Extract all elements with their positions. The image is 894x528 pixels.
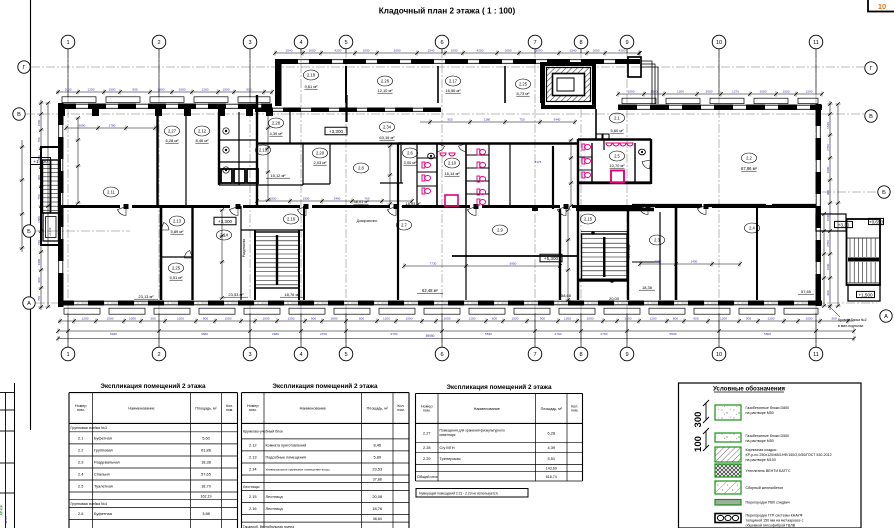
svg-text:58,68: 58,68: [561, 293, 572, 298]
svg-text:Экспликация помещений 2 этажа: Экспликация помещений 2 этажа: [446, 383, 552, 391]
svg-text:12,10 м²: 12,10 м²: [377, 88, 393, 93]
svg-text:2.2: 2.2: [746, 156, 752, 161]
svg-text:10,70 м²: 10,70 м²: [609, 163, 625, 168]
svg-text:5950: 5950: [510, 262, 517, 266]
svg-text:2.15: 2.15: [249, 494, 257, 499]
svg-text:1520: 1520: [270, 197, 277, 201]
svg-text:2.11: 2.11: [107, 190, 115, 195]
svg-text:Лестница: Лестница: [266, 506, 284, 511]
svg-text:Групповая ячейка №3: Групповая ячейка №3: [71, 426, 108, 430]
svg-text:2.13: 2.13: [249, 454, 257, 459]
svg-text:В: В: [869, 114, 873, 120]
svg-text:2.18: 2.18: [307, 73, 316, 78]
svg-text:1500: 1500: [303, 197, 310, 201]
svg-text:900: 900: [746, 317, 751, 321]
svg-text:62,48 м²: 62,48 м²: [422, 288, 439, 293]
svg-text:2.4: 2.4: [78, 472, 84, 477]
svg-text:Кладочный план 2 этажа ( 1 : 1: Кладочный план 2 этажа ( 1 : 100): [379, 7, 516, 16]
svg-text:Лестница: Лестница: [266, 494, 284, 499]
svg-text:+3,300: +3,300: [218, 219, 233, 224]
svg-text:7730: 7730: [430, 262, 437, 266]
svg-text:5,89 м²: 5,89 м²: [171, 229, 185, 234]
svg-text:Раздевальная: Раздевальная: [94, 460, 120, 465]
svg-text:2.5: 2.5: [614, 154, 620, 159]
svg-text:5800: 5800: [764, 332, 771, 336]
svg-text:2.28: 2.28: [272, 121, 281, 126]
svg-text:1400: 1400: [691, 260, 698, 264]
svg-text:Кол.: Кол.: [226, 404, 233, 408]
svg-text:пом.: пом.: [226, 408, 233, 412]
svg-text:6,28 м²: 6,28 м²: [166, 138, 180, 143]
svg-text:на растворе М50: на растворе М50: [746, 439, 774, 443]
svg-text:5480: 5480: [110, 332, 117, 336]
svg-text:2: 2: [157, 352, 160, 358]
svg-text:38,84: 38,84: [373, 517, 382, 521]
svg-text:1000: 1000: [129, 317, 136, 321]
svg-text:1540: 1540: [826, 214, 830, 221]
svg-text:143,69: 143,69: [546, 467, 557, 471]
svg-text:2.14: 2.14: [220, 233, 229, 238]
svg-text:4: 4: [299, 40, 302, 46]
svg-text:2.20: 2.20: [316, 151, 325, 156]
svg-text:1000: 1000: [444, 317, 451, 321]
svg-text:18,38: 18,38: [201, 460, 211, 465]
svg-text:3000: 3000: [536, 48, 543, 52]
svg-text:4,39 м²: 4,39 м²: [270, 131, 284, 136]
svg-text:Кружково-учебный блок: Кружково-учебный блок: [243, 430, 283, 434]
svg-text:1000: 1000: [826, 263, 830, 270]
svg-text:8,46: 8,46: [373, 442, 381, 447]
svg-text:5: 5: [344, 40, 347, 46]
svg-text:2,03 м²: 2,03 м²: [314, 160, 328, 165]
svg-text:Номер: Номер: [75, 404, 87, 408]
svg-text:Б: Б: [882, 190, 886, 196]
svg-text:2.34: 2.34: [383, 125, 392, 130]
svg-text:1200: 1200: [677, 89, 684, 93]
svg-text:Кирпичная кладка:: Кирпичная кладка:: [746, 448, 777, 452]
svg-text:11: 11: [813, 352, 819, 358]
svg-text:5590: 5590: [485, 332, 492, 336]
svg-text:пом.: пом.: [571, 409, 578, 413]
svg-text:2.1: 2.1: [78, 435, 83, 440]
svg-text:1000: 1000: [309, 48, 316, 52]
svg-text:5440: 5440: [554, 118, 561, 122]
svg-text:2: 2: [157, 40, 160, 46]
svg-text:3000: 3000: [706, 89, 713, 93]
svg-text:600: 600: [359, 317, 364, 321]
svg-text:900: 900: [246, 87, 251, 91]
svg-text:Дозировочно: Дозировочно: [357, 219, 378, 223]
svg-text:Номер: Номер: [247, 404, 259, 408]
svg-text:2980: 2980: [37, 258, 41, 265]
svg-text:1540: 1540: [428, 48, 435, 52]
svg-text:1500: 1500: [37, 119, 41, 126]
svg-text:3: 3: [248, 40, 251, 46]
svg-text:Экспликация помещений 2 этажа: Экспликация помещений 2 этажа: [272, 382, 378, 390]
svg-text:15,12 м²: 15,12 м²: [270, 173, 286, 178]
svg-text:5,60: 5,60: [202, 435, 210, 440]
svg-text:Лестницы: Лестницы: [243, 485, 260, 489]
svg-text:23,13 м²: 23,13 м²: [138, 294, 154, 299]
svg-text:1000: 1000: [806, 317, 813, 321]
svg-text:пом.: пом.: [77, 408, 85, 412]
svg-text:1180: 1180: [484, 118, 491, 122]
svg-text:на растворе М100: на растворе М100: [746, 458, 776, 462]
svg-text:2.17: 2.17: [449, 79, 458, 84]
svg-text:Г: Г: [869, 66, 872, 72]
svg-text:обшивкой гипсофиброй ГВЛВ: обшивкой гипсофиброй ГВЛВ: [746, 524, 796, 528]
svg-text:7: 7: [533, 352, 536, 358]
svg-text:2760: 2760: [555, 332, 562, 336]
svg-text:750: 750: [37, 296, 41, 301]
svg-text:Буфетная: Буфетная: [94, 511, 112, 516]
svg-text:2700: 2700: [826, 144, 830, 151]
svg-text:Буфетная: Буфетная: [94, 435, 112, 440]
svg-text:2.5: 2.5: [78, 484, 83, 489]
svg-text:толщиной 150 мм на мет.каркасе: толщиной 150 мм на мет.каркасе с: [746, 519, 804, 523]
svg-text:37,88: 37,88: [373, 477, 382, 481]
svg-text:18,76 м²: 18,76 м²: [284, 292, 300, 297]
svg-text:Наименование: Наименование: [128, 407, 154, 411]
svg-text:18,76: 18,76: [372, 506, 382, 511]
svg-text:100: 100: [693, 436, 704, 452]
svg-text:2.14: 2.14: [249, 467, 257, 472]
svg-text:18,38: 18,38: [642, 285, 653, 290]
svg-text:900: 900: [203, 317, 208, 321]
svg-text:57,65: 57,65: [201, 472, 211, 477]
svg-text:1200: 1200: [806, 89, 813, 93]
svg-text:1200: 1200: [469, 317, 476, 321]
svg-text:57,65: 57,65: [801, 289, 812, 294]
svg-text:2.28: 2.28: [423, 445, 431, 450]
svg-text:2.9: 2.9: [497, 228, 503, 233]
svg-text:Раздевалка: Раздевалка: [242, 239, 246, 258]
svg-text:900: 900: [826, 190, 830, 195]
svg-text:Газобетонные блоки D500: Газобетонные блоки D500: [746, 434, 790, 438]
svg-text:А: А: [27, 301, 31, 307]
svg-text:1200: 1200: [383, 317, 390, 321]
svg-text:950: 950: [447, 118, 452, 122]
svg-text:Групповая ячейка №4: Групповая ячейка №4: [71, 502, 108, 506]
svg-text:1200: 1200: [288, 317, 295, 321]
svg-text:900: 900: [540, 317, 545, 321]
svg-text:600: 600: [673, 317, 678, 321]
svg-text:Площадь, м²: Площадь, м²: [367, 407, 389, 411]
svg-text:5,51 м²: 5,51 м²: [170, 275, 184, 280]
svg-text:3,00 м²: 3,00 м²: [404, 160, 418, 165]
svg-text:2.25: 2.25: [519, 82, 528, 87]
svg-text:2.2: 2.2: [78, 447, 83, 452]
svg-text:А: А: [884, 314, 888, 320]
svg-text:1500: 1500: [223, 87, 230, 91]
svg-text:КР-р-по 250х120х65/1НФ/150/2,0: КР-р-по 250х120х65/1НФ/150/2,0/50/ГОСТ 5…: [746, 453, 832, 457]
svg-text:2.1: 2.1: [614, 116, 620, 121]
svg-text:Групповая: Групповая: [94, 447, 113, 452]
svg-text:5: 5: [344, 352, 347, 358]
svg-text:9: 9: [625, 40, 628, 46]
svg-text:Кровля блока №2: Кровля блока №2: [838, 318, 867, 322]
svg-text:900: 900: [311, 317, 316, 321]
svg-text:5,89: 5,89: [373, 454, 381, 459]
svg-text:Номер: Номер: [421, 404, 433, 408]
svg-text:8: 8: [579, 40, 582, 46]
svg-text:2.12: 2.12: [249, 442, 257, 447]
svg-text:1500: 1500: [109, 87, 116, 91]
svg-text:900: 900: [826, 290, 830, 295]
svg-text:1000: 1000: [363, 48, 370, 52]
svg-text:5,60 м²: 5,60 м²: [611, 128, 625, 133]
svg-text:2.15: 2.15: [584, 217, 593, 222]
svg-text:2.3: 2.3: [654, 238, 660, 243]
svg-text:7: 7: [533, 40, 536, 46]
svg-text:1500: 1500: [107, 317, 114, 321]
svg-text:Площадь, м²: Площадь, м²: [541, 407, 563, 411]
svg-text:1540: 1540: [826, 122, 830, 129]
svg-text:4,39: 4,39: [547, 445, 555, 450]
svg-text:760: 760: [37, 137, 41, 142]
svg-text:Туалетная: Туалетная: [94, 484, 113, 489]
svg-text:1200: 1200: [650, 317, 657, 321]
svg-text:в мин.подполье: в мин.подполье: [838, 324, 864, 328]
svg-text:Экспликация помещений 2 этажа: Экспликация помещений 2 этажа: [100, 382, 206, 390]
svg-text:8,73 м²: 8,73 м²: [517, 91, 531, 96]
svg-text:Сборный железобетон: Сборный железобетон: [746, 486, 784, 490]
svg-text:5,51: 5,51: [547, 456, 555, 461]
svg-text:1000: 1000: [593, 48, 600, 52]
svg-text:Кол.: Кол.: [571, 404, 578, 408]
svg-text:20,08: 20,08: [372, 494, 382, 499]
svg-text:Помещения для хранения физкуль: Помещения для хранения физкультурного: [440, 429, 505, 433]
svg-text:3000: 3000: [394, 48, 401, 52]
svg-text:2.3: 2.3: [78, 460, 83, 465]
svg-text:59090: 59090: [426, 334, 435, 338]
svg-text:3,88: 3,88: [202, 511, 210, 516]
svg-text:8175: 8175: [535, 160, 542, 164]
svg-text:9: 9: [625, 352, 628, 358]
svg-text:4: 4: [299, 352, 302, 358]
svg-text:1200: 1200: [88, 87, 95, 91]
svg-text:20,00: 20,00: [609, 296, 620, 301]
svg-text:Спальня: Спальня: [94, 472, 110, 477]
svg-text:Общий итог: Общий итог: [417, 475, 438, 479]
svg-text:16,14 м²: 16,14 м²: [444, 171, 460, 176]
svg-text:1200: 1200: [202, 87, 209, 91]
svg-text:4200: 4200: [477, 48, 484, 52]
svg-text:900: 900: [37, 277, 41, 282]
svg-text:Тренерская: Тренерская: [440, 456, 461, 461]
svg-text:5780: 5780: [391, 332, 398, 336]
svg-text:900: 900: [693, 317, 698, 321]
svg-text:2.12: 2.12: [198, 129, 207, 134]
svg-text:2.29: 2.29: [423, 456, 431, 461]
svg-text:3: 3: [248, 352, 251, 358]
svg-text:10: 10: [716, 352, 722, 358]
svg-text:2.27: 2.27: [168, 129, 177, 134]
svg-text:+3,300: +3,300: [48, 227, 52, 236]
svg-text:2.16: 2.16: [249, 506, 257, 511]
svg-text:2.10: 2.10: [448, 161, 457, 166]
svg-text:1: 1: [66, 40, 69, 46]
svg-text:1200: 1200: [82, 317, 89, 321]
svg-text:+3,300: +3,300: [329, 129, 344, 134]
svg-text:12.04: 12.04: [4, 516, 8, 524]
svg-text:С/у МГН: С/у МГН: [440, 445, 455, 450]
svg-text:900: 900: [132, 87, 137, 91]
svg-text:+0,650: +0,650: [869, 219, 884, 224]
svg-text:4200: 4200: [619, 48, 626, 52]
svg-text:Нумерация помещений 2.21 - 2.2: Нумерация помещений 2.21 - 2.23 не испол…: [419, 491, 498, 495]
svg-text:1200: 1200: [564, 317, 571, 321]
svg-text:пом.: пом.: [423, 409, 431, 413]
svg-text:1000: 1000: [451, 48, 458, 52]
svg-text:1200: 1200: [768, 317, 775, 321]
svg-text:6,28: 6,28: [547, 430, 555, 435]
svg-text:2.19: 2.19: [259, 148, 268, 153]
svg-text:38,01 м²: 38,01 м²: [353, 199, 369, 204]
svg-text:1540: 1540: [286, 48, 293, 52]
svg-text:2.6: 2.6: [78, 511, 83, 516]
svg-text:6090: 6090: [79, 124, 86, 128]
svg-text:1800: 1800: [331, 317, 338, 321]
svg-text:Площадь, м²: Площадь, м²: [195, 407, 217, 411]
svg-text:Г: Г: [22, 65, 25, 71]
svg-text:на растворе М50: на растворе М50: [746, 411, 774, 415]
svg-text:750: 750: [519, 118, 524, 122]
svg-text:8,46 м²: 8,46 м²: [196, 138, 210, 143]
svg-text:6: 6: [440, 352, 443, 358]
svg-text:Универсальное кружковое помеще: Универсальное кружковое помещение-класс: [266, 468, 331, 472]
svg-text:2.7: 2.7: [401, 223, 407, 228]
svg-text:1000: 1000: [587, 317, 594, 321]
svg-text:616,74: 616,74: [546, 475, 557, 479]
svg-text:+1,500: +1,500: [33, 159, 48, 164]
svg-text:2700: 2700: [826, 240, 830, 247]
svg-text:1540: 1540: [570, 48, 577, 52]
svg-text:пом.: пом.: [249, 408, 257, 412]
svg-text:Перегородки ГГП системы КНАУФ: Перегородки ГГП системы КНАУФ: [746, 514, 803, 518]
svg-text:2.27: 2.27: [423, 430, 431, 435]
svg-text:Б: Б: [27, 229, 31, 235]
svg-text:4200: 4200: [335, 48, 342, 52]
svg-text:Газобетонные блоки D800: Газобетонные блоки D800: [746, 406, 790, 410]
svg-text:600: 600: [492, 317, 497, 321]
svg-text:1200: 1200: [177, 317, 184, 321]
svg-text:300: 300: [831, 317, 836, 321]
svg-text:9,61 м²: 9,61 м²: [305, 84, 319, 89]
svg-text:1000: 1000: [263, 317, 270, 321]
svg-text:АР-КЖ: АР-КЖ: [0, 504, 4, 516]
svg-text:10: 10: [716, 40, 722, 46]
svg-text:16,56 м²: 16,56 м²: [445, 88, 461, 93]
svg-text:Наименование: Наименование: [474, 407, 500, 411]
svg-text:8: 8: [579, 352, 582, 358]
svg-text:2980: 2980: [272, 332, 279, 336]
svg-text:2.6: 2.6: [407, 151, 413, 156]
svg-text:Перегородки ПВХ сэндвич: Перегородки ПВХ сэндвич: [746, 501, 790, 505]
svg-text:2760: 2760: [601, 332, 608, 336]
svg-text:23,53: 23,53: [372, 467, 382, 472]
svg-text:63,16 м²: 63,16 м²: [379, 135, 395, 140]
svg-text:1000: 1000: [179, 87, 186, 91]
svg-text:2300: 2300: [655, 260, 662, 264]
svg-text:300: 300: [150, 317, 155, 321]
svg-text:Подсобные помещения: Подсобные помещения: [266, 455, 306, 459]
svg-text:2.8: 2.8: [358, 166, 364, 171]
svg-text:1200: 1200: [720, 317, 727, 321]
svg-text:61,86: 61,86: [201, 447, 211, 452]
svg-text:6: 6: [440, 40, 443, 46]
svg-text:162,19: 162,19: [201, 494, 212, 498]
svg-text:1800: 1800: [158, 87, 165, 91]
svg-text:2780: 2780: [109, 124, 116, 128]
svg-text:1500: 1500: [406, 317, 413, 321]
svg-text:300: 300: [693, 412, 704, 428]
svg-text:1: 1: [66, 352, 69, 358]
svg-text:Кол.: Кол.: [397, 404, 404, 408]
svg-text:1370: 1370: [732, 89, 739, 93]
svg-text:5530: 5530: [670, 332, 677, 336]
svg-text:67,86 м²: 67,86 м²: [741, 166, 758, 171]
svg-text:пом.: пом.: [397, 408, 404, 412]
svg-text:2.13: 2.13: [173, 219, 182, 224]
svg-text:2.26: 2.26: [381, 79, 390, 84]
svg-text:Комната приготовлений: Комната приготовлений: [266, 443, 307, 447]
svg-text:инвентаря: инвентаря: [440, 433, 456, 437]
svg-text:1000: 1000: [628, 89, 635, 93]
svg-text:18,70: 18,70: [201, 484, 212, 489]
svg-text:2700: 2700: [320, 332, 327, 336]
svg-text:11: 11: [813, 40, 819, 46]
svg-text:1500: 1500: [625, 317, 632, 321]
svg-text:18,03 м²: 18,03 м²: [405, 201, 421, 206]
svg-text:2.25: 2.25: [172, 266, 181, 271]
svg-text:1000: 1000: [826, 166, 830, 173]
svg-text:+3,30: +3,30: [838, 222, 850, 227]
svg-text:3460: 3460: [334, 197, 341, 201]
svg-text:1000: 1000: [505, 48, 512, 52]
svg-text:1500: 1500: [512, 317, 519, 321]
svg-text:Лестница: Лестница: [627, 244, 631, 259]
svg-text:В: В: [17, 112, 21, 118]
svg-text:1500: 1500: [783, 89, 790, 93]
svg-text:+5,300: +5,300: [544, 256, 559, 261]
svg-text:1000: 1000: [760, 89, 767, 93]
svg-text:23,53 м²: 23,53 м²: [228, 292, 244, 297]
svg-text:Утеплитель ВЕНТИ БАТТС: Утеплитель ВЕНТИ БАТТС: [746, 469, 791, 473]
svg-text:2.16: 2.16: [287, 217, 296, 222]
svg-text:1500: 1500: [225, 317, 232, 321]
svg-text:4380: 4380: [201, 332, 208, 336]
svg-text:2.4: 2.4: [749, 226, 755, 231]
svg-text:Наименование: Наименование: [300, 407, 326, 411]
svg-text:Условные обозначения: Условные обозначения: [713, 386, 785, 393]
svg-text:+1,500: +1,500: [858, 292, 873, 297]
svg-text:10: 10: [878, 2, 886, 11]
